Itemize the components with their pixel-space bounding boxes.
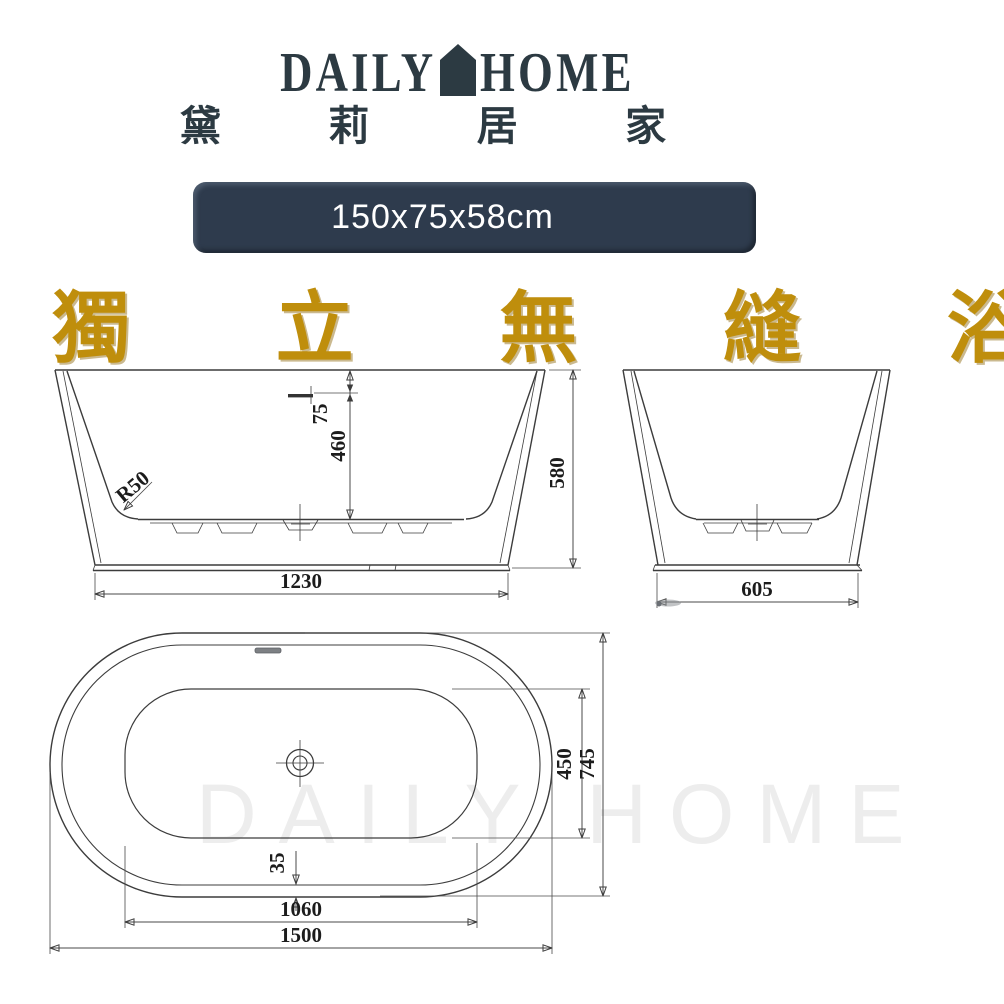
front-view: 75 460 580 1230 R50 (55, 370, 581, 600)
dim-label-75: 75 (308, 404, 332, 425)
dim-label-1500: 1500 (280, 923, 322, 947)
dim-label-460: 460 (326, 430, 350, 462)
dim-label-35: 35 (265, 853, 289, 874)
top-view: 450 745 35 1060 1500 (50, 633, 610, 954)
dim-label-1230: 1230 (280, 569, 322, 593)
side-view: 605 (623, 370, 890, 608)
technical-drawing: 75 460 580 1230 R50 (0, 0, 1004, 1004)
overflow-icon (288, 386, 313, 404)
drain-icon (276, 740, 324, 787)
dim-label-450: 450 (552, 748, 576, 780)
top-overflow-icon (255, 648, 281, 653)
dim-label-r50: R50 (111, 466, 154, 508)
product-spec-image: DAILY HOME 黛 莉 居 家 150x75x58cm 獨 立 無 縫 浴… (0, 0, 1004, 1004)
dim-label-1060: 1060 (280, 897, 322, 921)
headline-title: 獨 立 無 縫 浴 缸 (52, 289, 1004, 367)
dim-label-605: 605 (741, 577, 773, 601)
dim-label-745: 745 (575, 748, 599, 780)
dim-label-580: 580 (545, 457, 569, 489)
